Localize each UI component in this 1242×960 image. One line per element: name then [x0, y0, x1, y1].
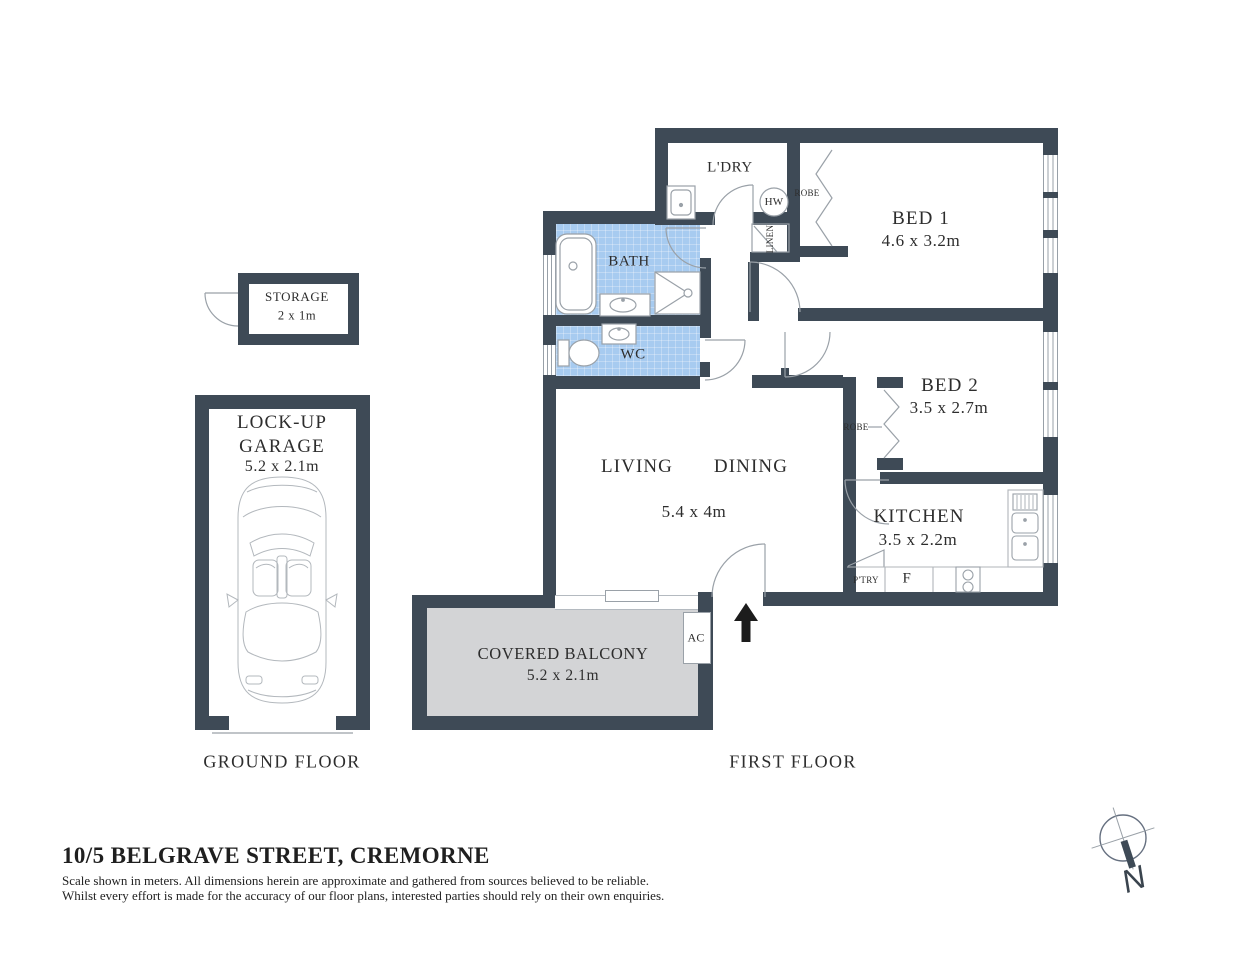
room-dims-kitchen: 3.5 x 2.2m: [879, 530, 958, 550]
floor-plan: N L'DRY HW ROBE LINEN BED 1 4.6 x 3.2m B…: [0, 0, 1242, 960]
room-label-fridge: F: [903, 571, 912, 588]
room-label-bath: BATH: [608, 254, 650, 271]
room-label-garage-1: LOCK-UP: [237, 412, 327, 434]
room-dims-bed1: 4.6 x 3.2m: [882, 231, 961, 251]
door-arc-bath: [666, 228, 706, 268]
laundry-tub: [667, 186, 695, 219]
car-illustration: [227, 477, 337, 703]
fixtures-layer: N: [0, 0, 1242, 960]
property-address: 10/5 BELGRAVE STREET, CREMORNE: [62, 843, 490, 869]
room-label-robe1: ROBE: [794, 188, 819, 198]
door-arc-wc: [705, 340, 745, 380]
room-label-living: LIVING: [601, 456, 673, 478]
door-fold-pantry: [848, 550, 884, 567]
disclaimer-line-2: Whilst every effort is made for the accu…: [62, 889, 664, 904]
toilet: [558, 340, 599, 366]
door-arc-bed2: [785, 332, 830, 377]
room-label-bed2: BED 2: [921, 375, 979, 397]
compass: N: [1082, 797, 1165, 900]
room-dims-balcony: 5.2 x 2.1m: [527, 667, 599, 685]
room-dims-living: 5.4 x 4m: [662, 502, 727, 522]
shower: [655, 272, 700, 314]
room-label-wc: WC: [620, 347, 645, 364]
bathtub: [556, 234, 596, 314]
compass-north-label: N: [1117, 858, 1152, 900]
room-label-linen: LINEN: [765, 225, 775, 254]
room-label-bed1: BED 1: [892, 208, 950, 230]
room-label-pantry: P'TRY: [853, 575, 879, 585]
wc-vanity-sink: [602, 324, 636, 344]
room-dims-bed2: 3.5 x 2.7m: [910, 398, 989, 418]
bath-vanity-sink: [600, 294, 650, 316]
room-label-hot-water: HW: [765, 196, 784, 208]
disclaimer-line-1: Scale shown in meters. All dimensions he…: [62, 874, 649, 889]
door-arc-bed1: [750, 262, 800, 312]
room-label-laundry: L'DRY: [707, 160, 753, 177]
room-dims-storage: 2 x 1m: [278, 309, 316, 324]
entry-arrow-icon: [734, 603, 758, 642]
room-dims-garage: 5.2 x 2.1m: [245, 458, 319, 476]
door-arc-storage: [205, 293, 238, 326]
room-label-garage-2: GARAGE: [239, 436, 325, 458]
ground-floor-title: GROUND FLOOR: [203, 752, 360, 773]
floor-plan-page: { "colors": { "wall": "#3e4a56", "wet_ar…: [0, 0, 1242, 960]
room-label-ac: AC: [687, 631, 704, 646]
stove: [956, 567, 980, 592]
robe-door-bed1: [816, 150, 832, 246]
first-floor-title: FIRST FLOOR: [729, 752, 857, 773]
robe-door-bed2: [884, 390, 899, 458]
room-label-dining: DINING: [714, 456, 788, 478]
room-label-robe2: ROBE: [843, 422, 868, 432]
kitchen-sink: [1012, 494, 1038, 560]
room-label-balcony: COVERED BALCONY: [478, 644, 649, 664]
room-label-kitchen: KITCHEN: [873, 506, 964, 528]
room-label-storage: STORAGE: [265, 289, 329, 305]
door-arc-laundry: [713, 185, 753, 225]
door-arc-entry: [712, 544, 765, 597]
